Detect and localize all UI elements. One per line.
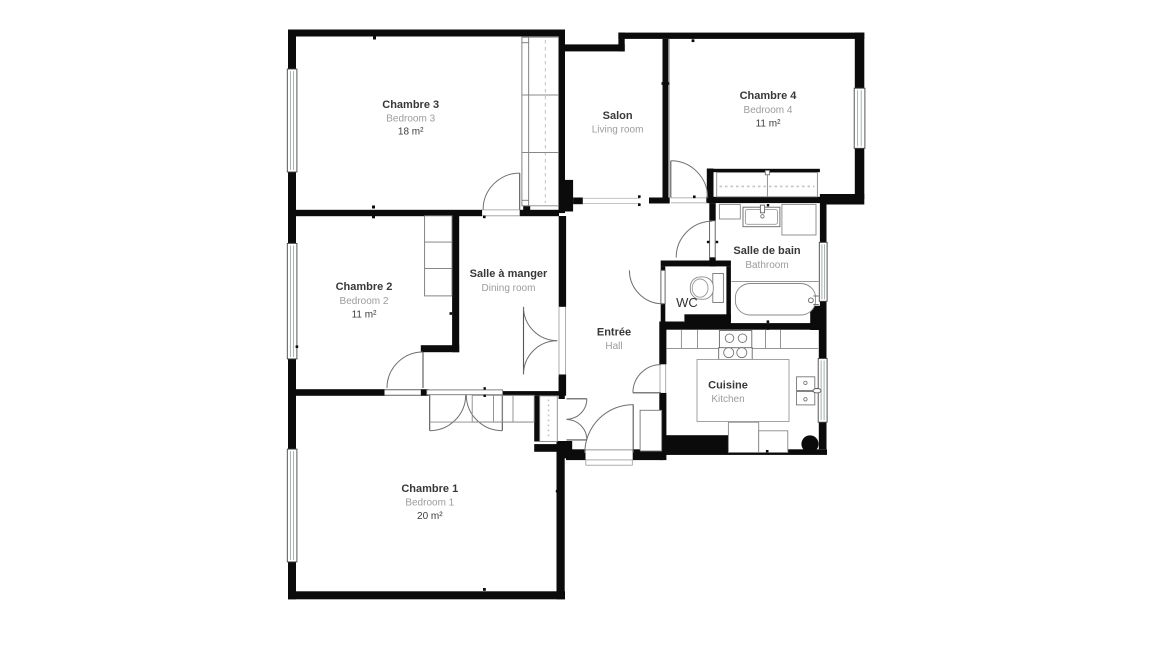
svg-text:Cuisine: Cuisine [708, 380, 748, 392]
svg-text:11 m²: 11 m² [352, 310, 377, 321]
svg-text:Chambre 3: Chambre 3 [382, 99, 439, 111]
svg-text:Salon: Salon [603, 110, 633, 122]
svg-text:Bedroom 1: Bedroom 1 [405, 498, 454, 509]
svg-text:Bedroom 4: Bedroom 4 [744, 105, 793, 116]
svg-text:20 m²: 20 m² [417, 511, 443, 522]
svg-text:Salle de bain: Salle de bain [733, 245, 801, 257]
svg-text:Bedroom 2: Bedroom 2 [340, 296, 389, 307]
svg-text:Salle à manger: Salle à manger [470, 268, 548, 280]
svg-text:Kitchen: Kitchen [711, 394, 744, 405]
svg-text:WC: WC [676, 295, 698, 310]
svg-text:Bedroom 3: Bedroom 3 [386, 114, 435, 125]
svg-text:Bathroom: Bathroom [745, 260, 788, 271]
svg-text:11 m²: 11 m² [756, 119, 781, 130]
svg-text:18 m²: 18 m² [398, 127, 424, 138]
svg-text:Living room: Living room [592, 125, 644, 136]
svg-text:Chambre 4: Chambre 4 [740, 90, 798, 102]
svg-text:Hall: Hall [605, 341, 622, 352]
svg-text:Chambre 1: Chambre 1 [401, 483, 458, 495]
svg-text:Entrée: Entrée [597, 327, 631, 339]
svg-text:Chambre 2: Chambre 2 [336, 281, 393, 293]
svg-text:Dining room: Dining room [482, 283, 536, 294]
